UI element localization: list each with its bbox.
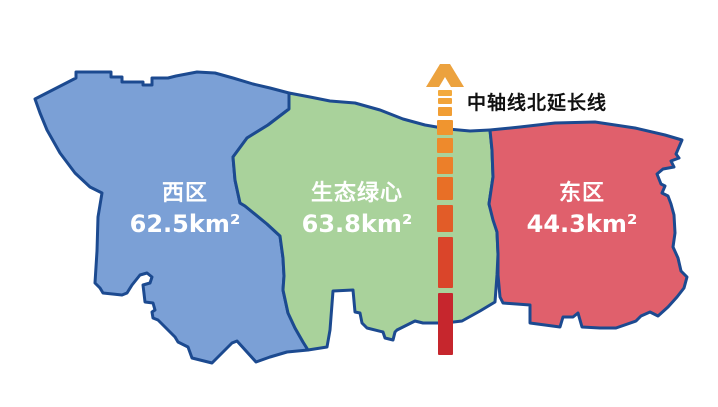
axis-dash — [437, 205, 453, 232]
axis-dash — [437, 177, 453, 200]
axis-arrow-icon — [426, 64, 464, 87]
axis-dash — [438, 90, 452, 96]
axis-dash — [437, 138, 453, 153]
axis-dash — [438, 107, 452, 116]
axis-dash — [437, 157, 453, 174]
axis-dash — [438, 293, 453, 355]
axis-label: 中轴线北延长线 — [467, 88, 607, 115]
axis-dash — [437, 120, 453, 135]
map-svg — [0, 0, 718, 407]
axis-dash — [438, 98, 452, 104]
axis-dash-line — [437, 90, 453, 355]
map-diagram: 西区 62.5km² 生态绿心 63.8km² 东区 44.3km² 中轴线北延… — [0, 0, 718, 407]
region-east-shape — [489, 122, 687, 328]
axis-dash — [438, 237, 453, 288]
